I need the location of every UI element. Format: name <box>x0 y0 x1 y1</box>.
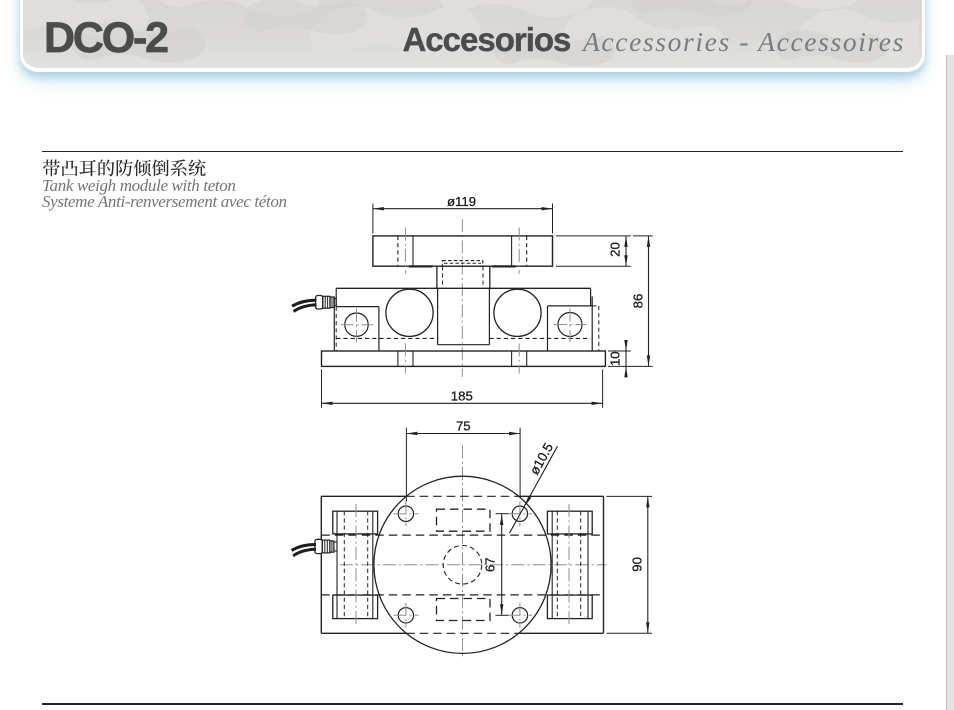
svg-text:20: 20 <box>608 242 623 257</box>
svg-text:ø10.5: ø10.5 <box>527 440 556 477</box>
svg-text:185: 185 <box>451 388 473 403</box>
svg-text:90: 90 <box>629 557 644 572</box>
svg-text:86: 86 <box>630 294 645 309</box>
svg-text:ø119: ø119 <box>447 194 476 209</box>
svg-text:67: 67 <box>482 557 497 572</box>
svg-text:10: 10 <box>608 351 623 366</box>
svg-text:75: 75 <box>456 419 471 434</box>
